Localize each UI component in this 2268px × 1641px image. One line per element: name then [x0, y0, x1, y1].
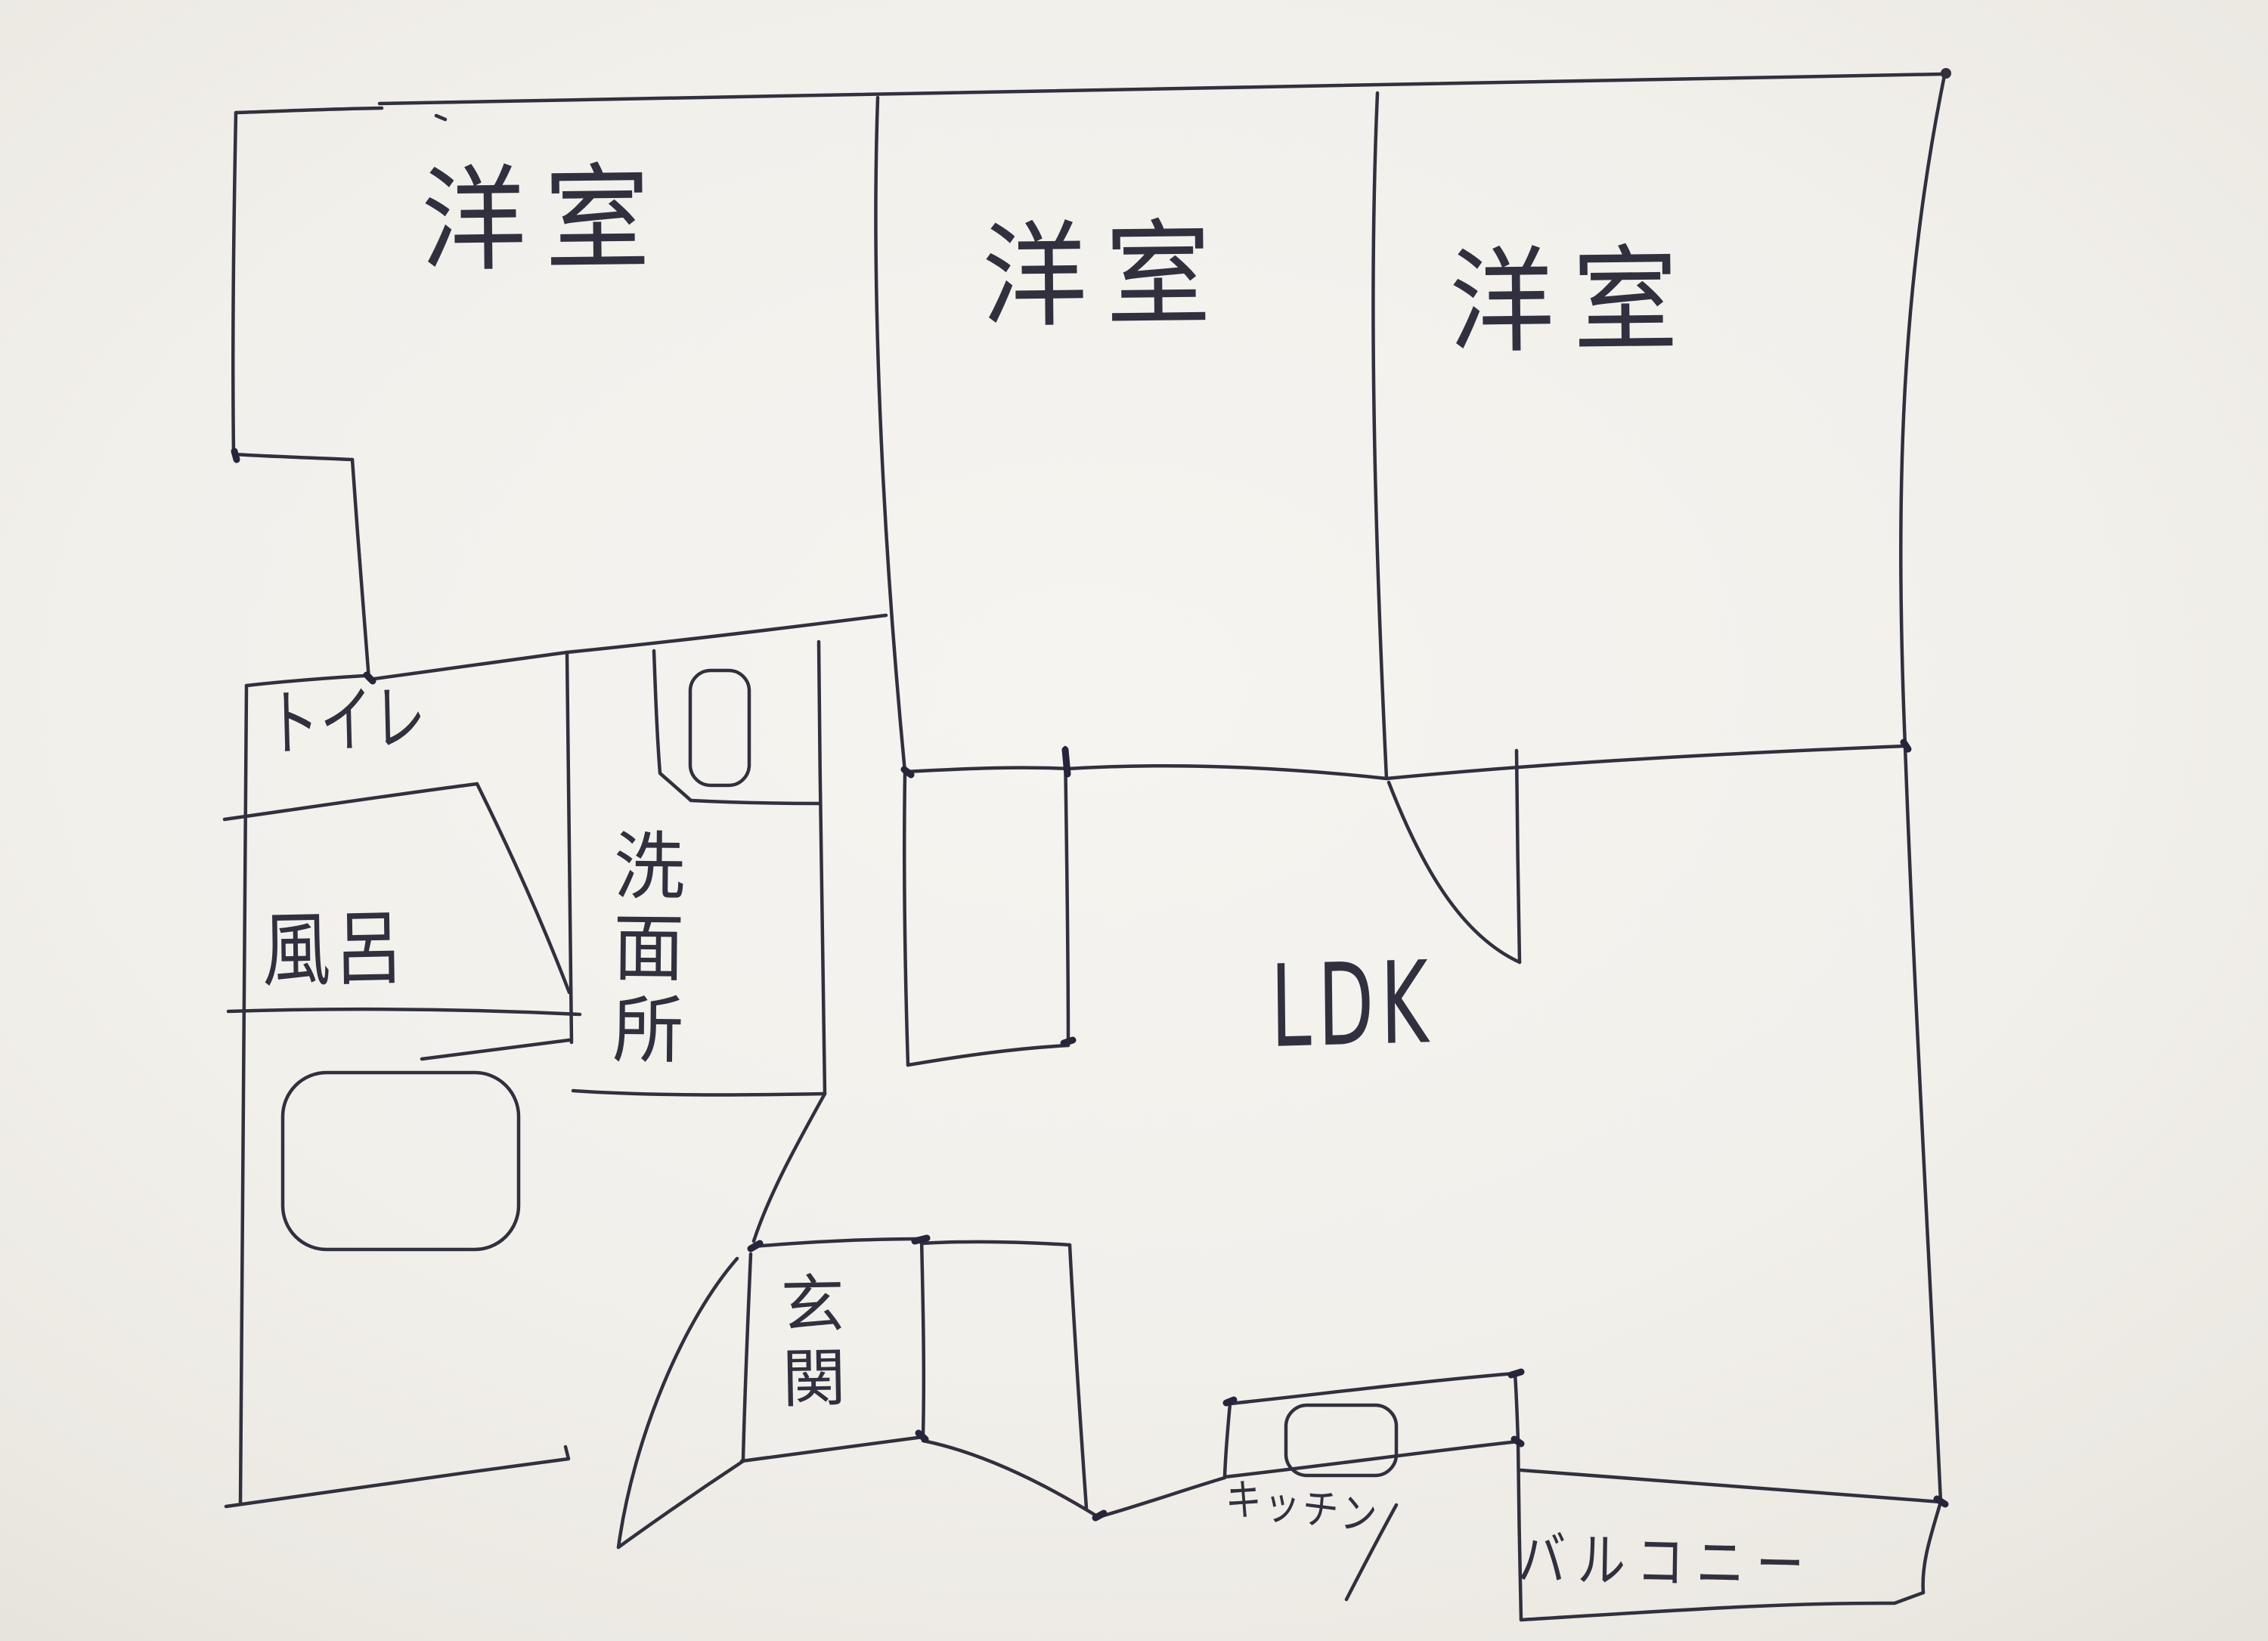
- floor-plan-sheet: 洋室 洋室 洋室 トイレ 風呂 洗面所 玄関 LDK キッチン バルコニー: [0, 0, 2268, 1641]
- western-room-1-bottom-wall: [369, 615, 886, 680]
- washbasin: [654, 651, 819, 803]
- label-ldk: LDK: [1270, 942, 1436, 1069]
- room-divider-west-1-2: [875, 98, 905, 772]
- label-entrance: 玄関: [773, 1270, 844, 1420]
- entrance-door-swing: [618, 1259, 743, 1547]
- kitchen-counter: [1225, 1373, 1518, 1477]
- ldk-door-swing: [1389, 751, 1520, 962]
- room-divider-west-2-3: [1373, 93, 1387, 779]
- ldk-top-wall: [905, 746, 1905, 779]
- bathtub: [283, 1073, 519, 1249]
- stray-pen-mark: [436, 116, 445, 119]
- label-bath: 風呂: [262, 906, 407, 996]
- kitchen-sink: [1286, 1405, 1396, 1475]
- label-toilet: トイレ: [266, 679, 428, 765]
- closet-box: [904, 748, 1068, 1065]
- corner-ticks: [234, 451, 1945, 1518]
- label-washroom: 洗面所: [603, 827, 681, 1073]
- label-balcony: バルコニー: [1517, 1528, 1816, 1598]
- label-western-room-2: 洋室: [981, 213, 1230, 339]
- label-western-room-3: 洋室: [1448, 239, 1697, 365]
- label-western-room-1: 洋室: [420, 157, 669, 283]
- bath-walls: [228, 1009, 580, 1059]
